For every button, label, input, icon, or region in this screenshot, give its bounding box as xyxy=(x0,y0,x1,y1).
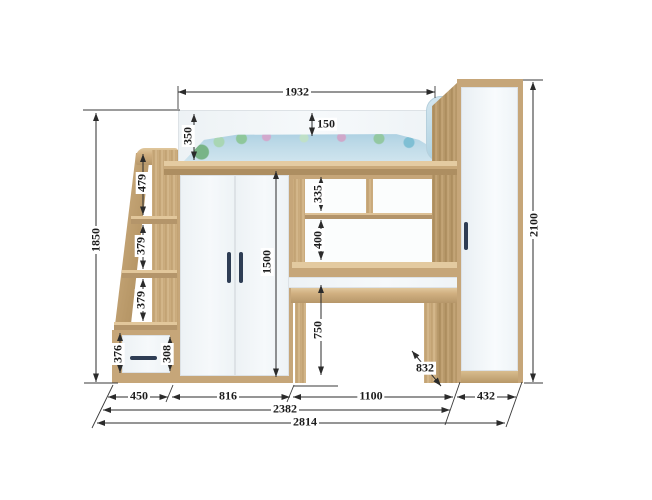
ext-diag-wardrobe-desk xyxy=(287,385,294,402)
technical-drawing-canvas: 1932 350 150 1850 2100 479 379 379 376 3… xyxy=(0,0,652,500)
dim-wardrobe-height: 1500 xyxy=(261,248,274,276)
ext-diag-far-right xyxy=(506,382,522,427)
dim-mattress-gap: 150 xyxy=(315,118,337,131)
dim-width-total: 2814 xyxy=(291,416,319,429)
dim-height-right: 2100 xyxy=(528,211,541,239)
dim-width-desk: 1100 xyxy=(357,390,384,403)
dim-width-span: 2382 xyxy=(271,403,299,416)
ext-diag-desk-cabinet xyxy=(445,382,460,425)
dim-shelf-top: 335 xyxy=(312,183,325,205)
dim-width-stairs: 450 xyxy=(128,390,150,403)
dim-desk-clearance: 750 xyxy=(312,319,325,341)
dim-drawer-outer: 376 xyxy=(112,343,125,365)
dim-stair-rail: 479 xyxy=(136,172,149,194)
dim-height-left: 1850 xyxy=(90,226,103,254)
ext-diag-far-left xyxy=(92,385,113,428)
dim-shelf-middle: 400 xyxy=(312,229,325,251)
ext-diag-stairs-wardrobe xyxy=(166,385,173,402)
dim-step-lower: 379 xyxy=(135,289,148,311)
dim-step-upper: 379 xyxy=(135,235,148,257)
dim-width-cabinet: 432 xyxy=(475,390,497,403)
dim-desk-depth: 832 xyxy=(414,362,436,375)
dim-guard-rail-height: 350 xyxy=(182,125,195,147)
dim-drawer-front: 308 xyxy=(161,343,174,365)
dim-width-wardrobe: 816 xyxy=(217,390,239,403)
dim-bed-length: 1932 xyxy=(283,86,311,99)
